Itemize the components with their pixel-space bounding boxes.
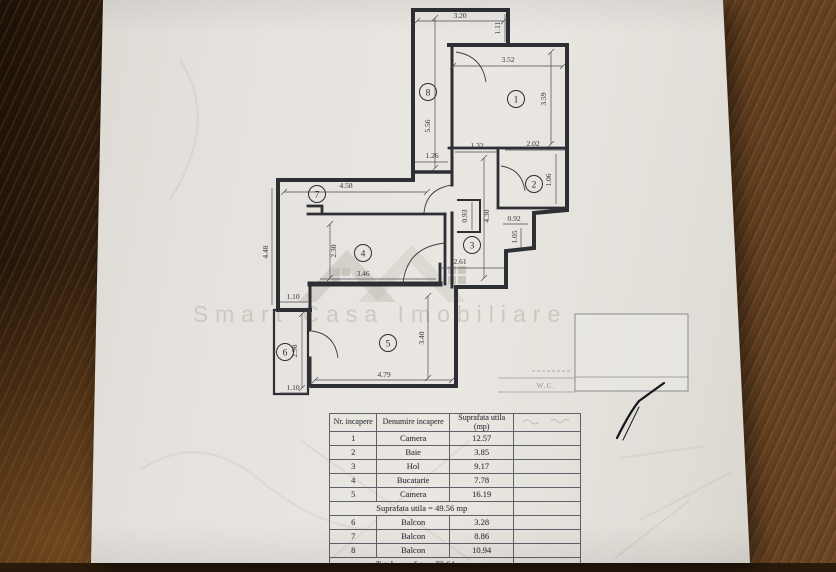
cell-note xyxy=(514,488,581,502)
cell-name: Baie xyxy=(377,446,450,460)
cell-area: 7.78 xyxy=(449,474,514,488)
cell-nr: 3 xyxy=(330,460,377,474)
cell-note xyxy=(514,446,581,460)
cell-nr: 8 xyxy=(330,544,377,558)
table-row: 2 Baie 3.85 xyxy=(330,446,581,460)
cell-name: Balcon xyxy=(377,516,450,530)
paper-bleed-marks xyxy=(140,60,732,560)
faint-handwriting-mark xyxy=(519,417,575,425)
cell-name: Balcon xyxy=(377,530,450,544)
paper-shadow-wrap: Smart Casa Imobiliare xyxy=(0,0,836,563)
dim-label: 2.30 xyxy=(329,244,338,257)
cell-nr: 6 xyxy=(330,516,377,530)
cell-name: Camera xyxy=(377,432,450,446)
room-number: 4 xyxy=(361,250,366,260)
cell-area: 12.57 xyxy=(449,432,514,446)
area-table: Nr. incapere Denumire incapere Suprafata… xyxy=(329,413,581,572)
room-number: 6 xyxy=(283,349,288,359)
cell-note xyxy=(514,502,581,516)
walls xyxy=(274,10,567,394)
dim-label: 2.61 xyxy=(453,257,466,266)
room-number: 8 xyxy=(426,89,431,99)
table-row: 3 Hol 9.17 xyxy=(330,460,581,474)
floor-plan-drawing: Smart Casa Imobiliare xyxy=(0,0,836,563)
dimension-labels: 3.20 1.11 3.52 3.59 5.56 1.26 1.32 2.02 … xyxy=(261,11,553,392)
floor-plan-sheet: Smart Casa Imobiliare xyxy=(0,0,836,563)
cell-nr: 7 xyxy=(330,530,377,544)
header-denumire: Denumire incapere xyxy=(377,414,450,432)
dim-label: 1.32 xyxy=(470,141,483,150)
cell-note xyxy=(514,544,581,558)
wc-label: W.C. xyxy=(536,381,555,390)
cell-nr: 2 xyxy=(330,446,377,460)
cell-note xyxy=(514,516,581,530)
dim-label: 3.20 xyxy=(453,11,466,20)
dimension-ticks xyxy=(281,15,566,391)
cell-nr: 4 xyxy=(330,474,377,488)
cell-name: Balcon xyxy=(377,544,450,558)
dimension-lines xyxy=(272,14,566,393)
cell-note xyxy=(514,474,581,488)
cell-area: 16.19 xyxy=(449,488,514,502)
dim-label: 0.93 xyxy=(460,209,469,222)
dim-label: 1.10 xyxy=(286,383,299,392)
cell-note xyxy=(514,530,581,544)
header-note xyxy=(514,414,581,432)
table-row: 6 Balcon 3.28 xyxy=(330,516,581,530)
table-row: 4 Bucatarie 7.78 xyxy=(330,474,581,488)
cell-note xyxy=(514,558,581,572)
dim-label: 1.11 xyxy=(493,21,502,34)
pen-checkmark xyxy=(617,383,664,440)
dim-label: 4.30 xyxy=(482,209,491,222)
room-number-circles: 1 2 3 4 5 6 7 8 xyxy=(277,84,543,361)
cell-name: Camera xyxy=(377,488,450,502)
room-number: 2 xyxy=(532,181,537,191)
dim-label: 4.58 xyxy=(339,181,352,190)
room-number: 5 xyxy=(386,340,391,350)
dim-label: 3.59 xyxy=(539,92,548,105)
cell-name: Bucatarie xyxy=(377,474,450,488)
stamp-box-area: W.C. xyxy=(498,314,688,392)
cell-area: 3.85 xyxy=(449,446,514,460)
dim-label: 1.05 xyxy=(510,230,519,243)
total-label: Total suprafata = 72.64 mp xyxy=(330,558,514,572)
subtotal-label: Suprafata utila = 49.56 mp xyxy=(330,502,514,516)
dim-label: 5.56 xyxy=(423,119,432,132)
cell-nr: 1 xyxy=(330,432,377,446)
dim-label: 0.92 xyxy=(507,214,520,223)
watermark-chevron-icon xyxy=(358,245,466,302)
room-number: 1 xyxy=(514,96,519,106)
dim-label: 3.52 xyxy=(501,55,514,64)
cell-nr: 5 xyxy=(330,488,377,502)
dim-label: 3.40 xyxy=(417,331,426,344)
table-header-row: Nr. incapere Denumire incapere Suprafata… xyxy=(330,414,581,432)
cell-note xyxy=(514,432,581,446)
table-row: 1 Camera 12.57 xyxy=(330,432,581,446)
dim-label: 3.46 xyxy=(356,269,369,278)
cell-note xyxy=(514,460,581,474)
cell-area: 3.28 xyxy=(449,516,514,530)
cell-area: 8.86 xyxy=(449,530,514,544)
table-row: 8 Balcon 10.94 xyxy=(330,544,581,558)
room-number: 7 xyxy=(315,191,320,201)
cell-name: Hol xyxy=(377,460,450,474)
photo-of-floor-plan: { "plan": { "room_numbers": ["1","2","3"… xyxy=(0,0,836,563)
dim-label: 1.26 xyxy=(425,151,438,160)
subtotal-row: Suprafata utila = 49.56 mp xyxy=(330,502,581,516)
watermark: Smart Casa Imobiliare xyxy=(193,245,568,327)
watermark-pixel-squares xyxy=(332,266,466,286)
cell-area: 9.17 xyxy=(449,460,514,474)
dim-label: 2.98 xyxy=(290,344,299,357)
table-row: 7 Balcon 8.86 xyxy=(330,530,581,544)
watermark-chevron-icon xyxy=(298,250,396,302)
dim-label: 4.48 xyxy=(261,245,270,258)
dim-label: 4.79 xyxy=(377,370,390,379)
watermark-text: Smart Casa Imobiliare xyxy=(193,301,568,327)
door-arcs xyxy=(312,52,525,358)
dim-label: 1.10 xyxy=(286,292,299,301)
room-number: 3 xyxy=(470,242,475,252)
header-nr: Nr. incapere xyxy=(330,414,377,432)
table-row: 5 Camera 16.19 xyxy=(330,488,581,502)
header-suprafata: Suprafata utila (mp) xyxy=(449,414,514,432)
dim-label: 2.02 xyxy=(526,139,539,148)
cell-area: 10.94 xyxy=(449,544,514,558)
dim-label: 1.06 xyxy=(544,173,553,186)
total-row: Total suprafata = 72.64 mp xyxy=(330,558,581,572)
stamp-box xyxy=(575,314,688,391)
